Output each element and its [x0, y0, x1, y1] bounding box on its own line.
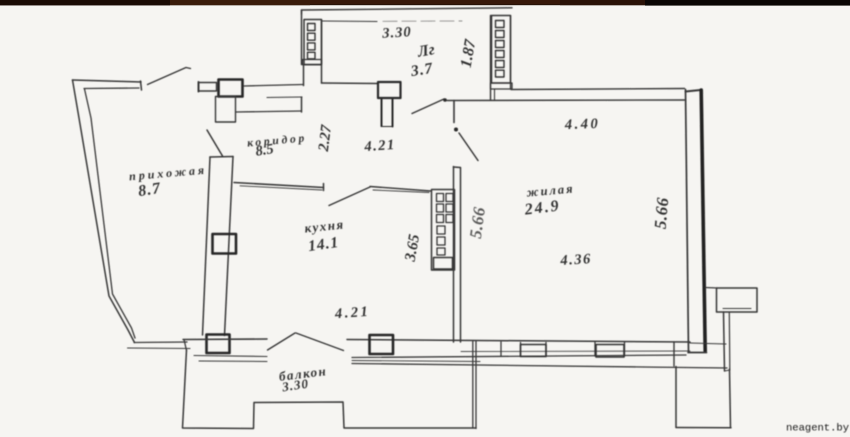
svg-text:4.36: 4.36: [559, 251, 592, 269]
svg-text:3.30: 3.30: [381, 24, 412, 42]
svg-text:Лг: Лг: [415, 41, 436, 61]
svg-text:4.21: 4.21: [363, 137, 396, 155]
svg-text:4.40: 4.40: [564, 116, 601, 133]
svg-text:4.21: 4.21: [333, 304, 370, 322]
svg-text:2.27: 2.27: [316, 124, 335, 153]
svg-text:8.7: 8.7: [137, 180, 162, 200]
svg-text:8.5: 8.5: [254, 141, 274, 160]
svg-text:neagent.by: neagent.by: [786, 423, 849, 435]
svg-text:5.66: 5.66: [651, 196, 673, 229]
